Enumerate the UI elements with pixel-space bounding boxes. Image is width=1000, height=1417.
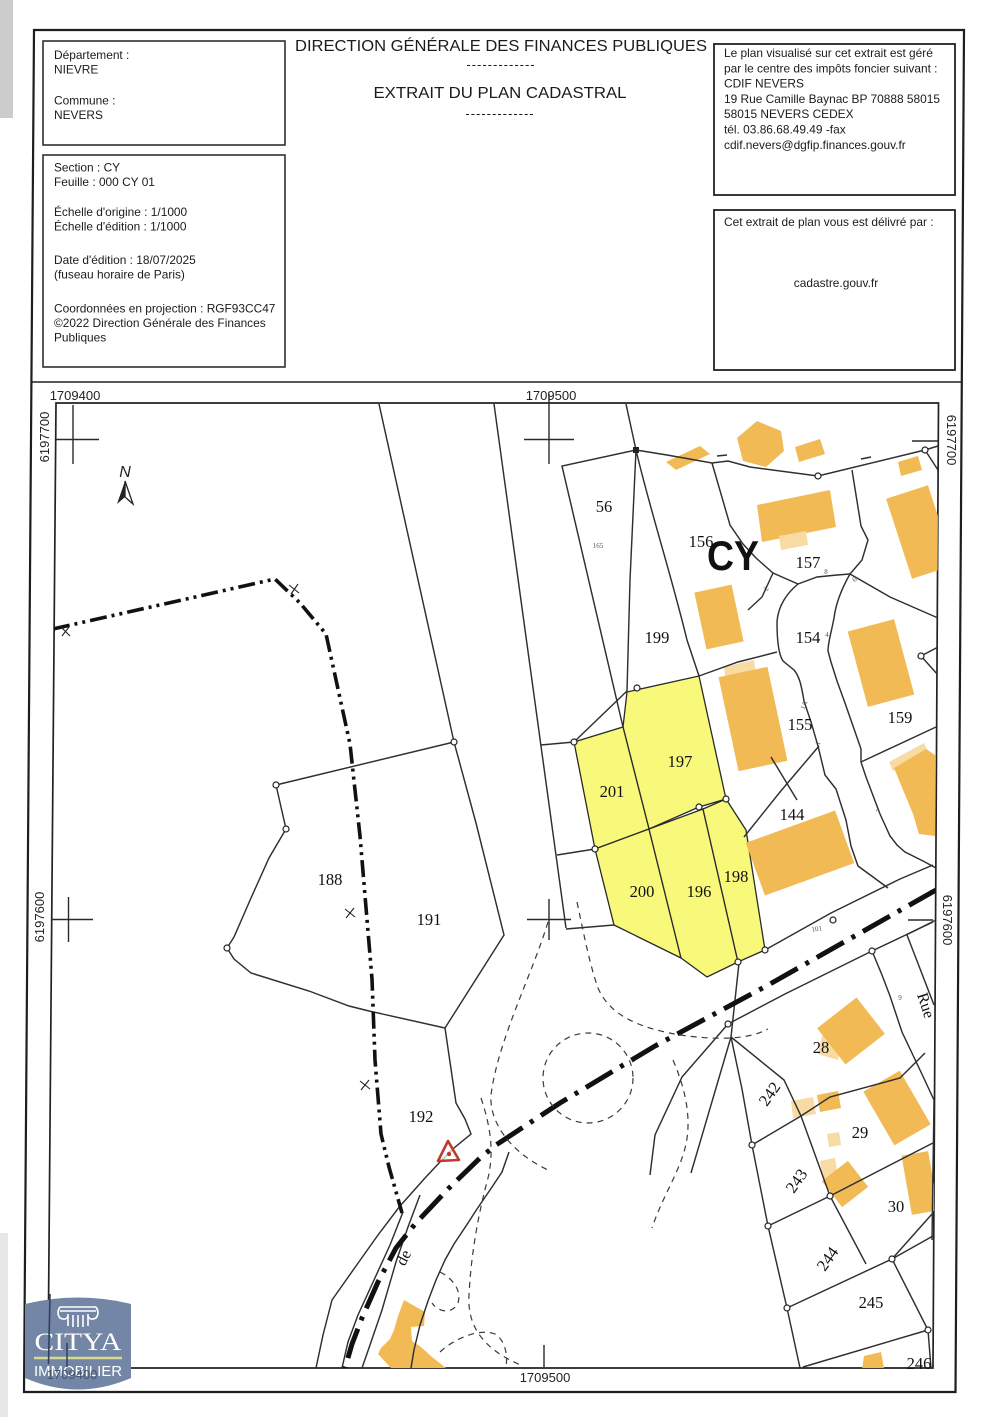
svg-text:Publiques: Publiques — [54, 330, 106, 344]
svg-text:NIEVRE: NIEVRE — [54, 62, 98, 76]
svg-text:159: 159 — [888, 708, 913, 727]
svg-text:EXTRAIT DU PLAN CADASTRAL: EXTRAIT DU PLAN CADASTRAL — [374, 85, 627, 102]
svg-text:Département :: Département : — [54, 48, 129, 62]
svg-text:188: 188 — [318, 870, 343, 889]
svg-text:6197700: 6197700 — [944, 415, 959, 466]
svg-text:Feuille : 000 CY 01: Feuille : 000 CY 01 — [54, 175, 155, 189]
svg-text:Date d'édition : 18/07/2025: Date d'édition : 18/07/2025 — [54, 253, 196, 267]
svg-text:Le plan visualisé sur cet extr: Le plan visualisé sur cet extrait est gé… — [724, 46, 933, 60]
svg-text:Échelle d'édition : 1/1000: Échelle d'édition : 1/1000 — [54, 218, 187, 233]
svg-text:-------------: ------------- — [465, 106, 534, 121]
svg-text:246: 246 — [907, 1354, 932, 1373]
svg-text:30: 30 — [888, 1197, 905, 1216]
svg-text:191: 191 — [417, 910, 442, 929]
svg-text:Échelle d'origine : 1/1000: Échelle d'origine : 1/1000 — [54, 204, 188, 219]
svg-text:201: 201 — [600, 782, 625, 801]
svg-text:6197700: 6197700 — [37, 412, 52, 463]
svg-text:8: 8 — [824, 568, 828, 576]
svg-text:245: 245 — [859, 1293, 884, 1312]
svg-text:cdif.nevers@dgfip.finances.gou: cdif.nevers@dgfip.finances.gouv.fr — [724, 138, 906, 152]
svg-text:19 Rue Camille Baynac BP 70888: 19 Rue Camille Baynac BP 70888 58015 — [724, 92, 940, 106]
svg-text:Cet extrait de plan vous est d: Cet extrait de plan vous est délivré par… — [724, 215, 934, 229]
svg-text:197: 197 — [668, 752, 693, 771]
svg-text:157: 157 — [796, 553, 821, 572]
svg-text:198: 198 — [724, 867, 749, 886]
svg-text:Section : CY: Section : CY — [54, 161, 120, 175]
svg-text:200: 200 — [630, 882, 655, 901]
svg-text:6197600: 6197600 — [940, 895, 955, 946]
svg-text:CITYA: CITYA — [35, 1329, 122, 1356]
svg-text:N: N — [119, 464, 131, 481]
svg-text:cadastre.gouv.fr: cadastre.gouv.fr — [794, 276, 878, 290]
svg-text:155: 155 — [788, 715, 813, 734]
svg-text:6197600: 6197600 — [32, 892, 47, 943]
svg-text:196: 196 — [687, 882, 712, 901]
svg-text:144: 144 — [780, 805, 805, 824]
svg-text:DIRECTION GÉNÉRALE DES FINANCE: DIRECTION GÉNÉRALE DES FINANCES PUBLIQUE… — [295, 36, 707, 55]
svg-text:par le centre des impôts fonci: par le centre des impôts foncier suivant… — [724, 61, 937, 75]
svg-text:28: 28 — [813, 1038, 830, 1057]
svg-text:101: 101 — [811, 924, 823, 933]
svg-text:-------------: ------------- — [466, 57, 535, 72]
svg-text:1709400: 1709400 — [47, 1367, 98, 1382]
svg-text:9: 9 — [898, 994, 902, 1002]
svg-text:199: 199 — [645, 628, 670, 647]
svg-text:CDIF NEVERS: CDIF NEVERS — [724, 77, 804, 91]
svg-text:4: 4 — [825, 631, 829, 639]
svg-text:58015 NEVERS CEDEX: 58015 NEVERS CEDEX — [724, 107, 854, 121]
svg-text:1709500: 1709500 — [520, 1370, 571, 1385]
svg-text:1709400: 1709400 — [50, 388, 101, 403]
svg-text:tél. 03.86.68.49.49 -fax: tél. 03.86.68.49.49 -fax — [724, 123, 846, 137]
svg-text:(fuseau horaire de Paris): (fuseau horaire de Paris) — [54, 267, 185, 281]
svg-text:56: 56 — [596, 497, 613, 516]
svg-text:29: 29 — [852, 1123, 869, 1142]
svg-text:©2022 Direction Générale des F: ©2022 Direction Générale des Finances — [54, 316, 266, 330]
svg-text:Commune :: Commune : — [54, 94, 115, 108]
svg-text:165: 165 — [593, 542, 604, 550]
svg-text:1709500: 1709500 — [526, 388, 577, 403]
svg-text:CY: CY — [707, 532, 759, 579]
svg-text:NEVERS: NEVERS — [54, 108, 103, 122]
svg-text:192: 192 — [409, 1107, 434, 1126]
svg-text:Coordonnées en projection : RG: Coordonnées en projection : RGF93CC47 — [54, 302, 276, 316]
svg-text:154: 154 — [796, 628, 821, 647]
